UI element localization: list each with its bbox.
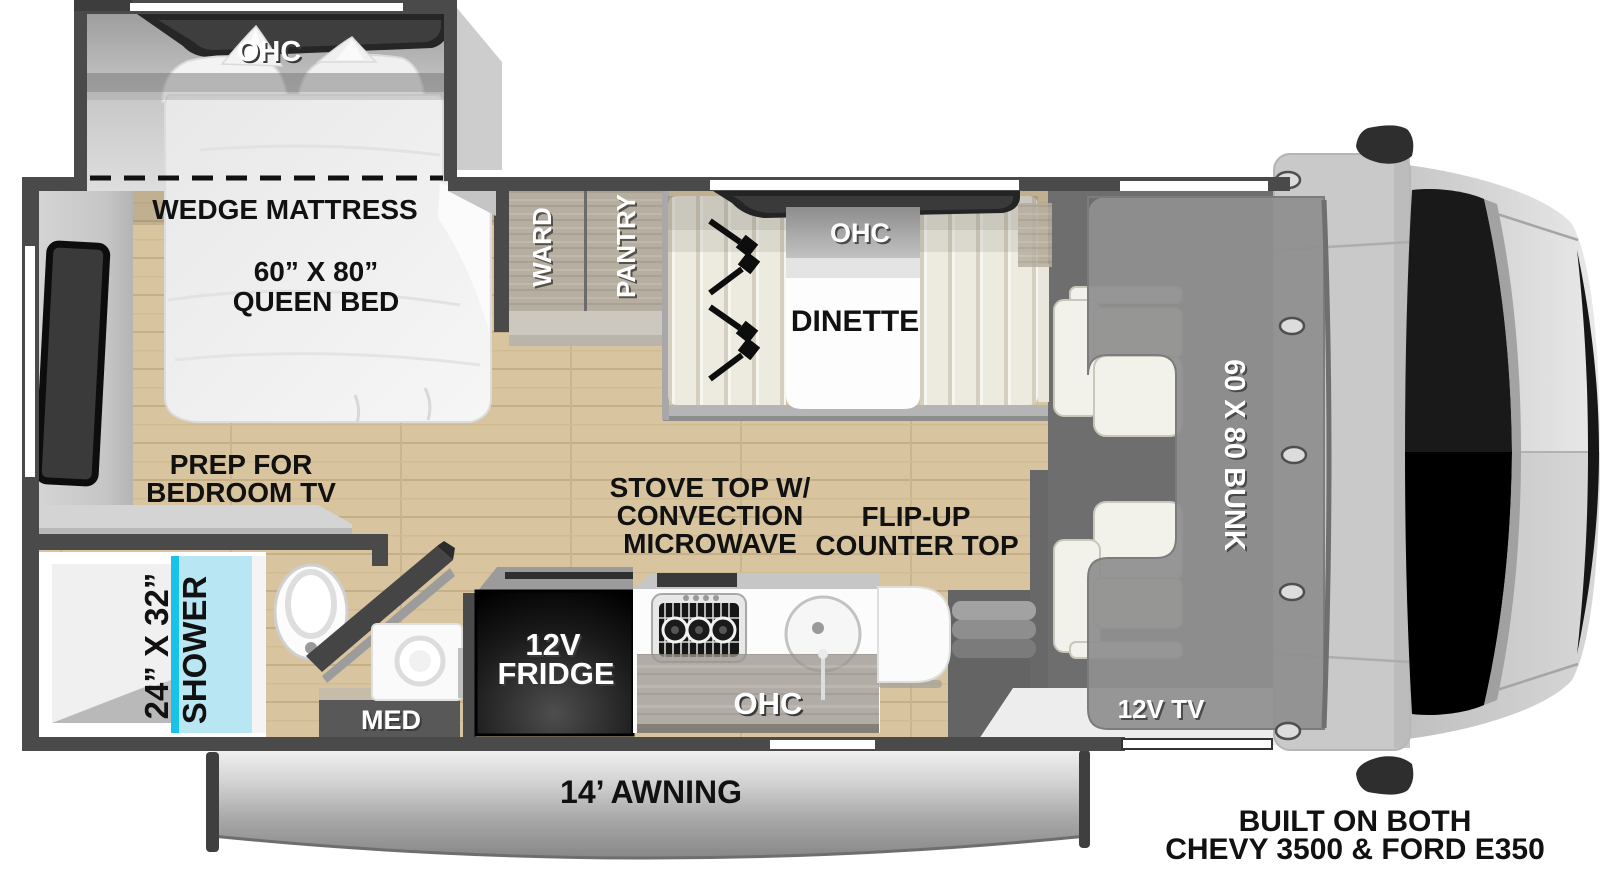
svg-text:FLIP-UP: FLIP-UP [862,501,971,532]
svg-text:12V TV: 12V TV [1118,694,1205,724]
svg-text:PREP FOR: PREP FOR [170,449,313,480]
svg-text:BEDROOM TV: BEDROOM TV [146,477,336,508]
svg-text:OHC: OHC [830,218,890,248]
svg-text:COUNTER TOP: COUNTER TOP [815,530,1018,561]
svg-text:60 X 80 BUNK: 60 X 80 BUNK [1218,359,1250,551]
svg-text:STOVE TOP W/: STOVE TOP W/ [610,472,811,503]
svg-text:OHC: OHC [734,686,803,721]
svg-text:24” X 32”: 24” X 32” [138,573,175,720]
svg-text:OHC: OHC [237,36,302,68]
svg-text:WARD: WARD [527,207,557,286]
svg-text:CHEVY 3500 & FORD E350: CHEVY 3500 & FORD E350 [1165,833,1545,866]
svg-text:MICROWAVE: MICROWAVE [623,528,797,559]
svg-text:MED: MED [361,705,421,735]
svg-text:PANTRY: PANTRY [611,194,641,298]
svg-text:SHOWER: SHOWER [176,576,213,725]
svg-text:14’ AWNING: 14’ AWNING [560,774,742,810]
svg-text:60” X 80”: 60” X 80” [254,256,379,287]
svg-text:WEDGE MATTRESS: WEDGE MATTRESS [152,194,417,225]
svg-text:QUEEN BED: QUEEN BED [233,286,399,317]
svg-text:DINETTE: DINETTE [791,305,919,338]
svg-text:FRIDGE: FRIDGE [497,656,614,691]
svg-text:CONVECTION: CONVECTION [617,500,804,531]
